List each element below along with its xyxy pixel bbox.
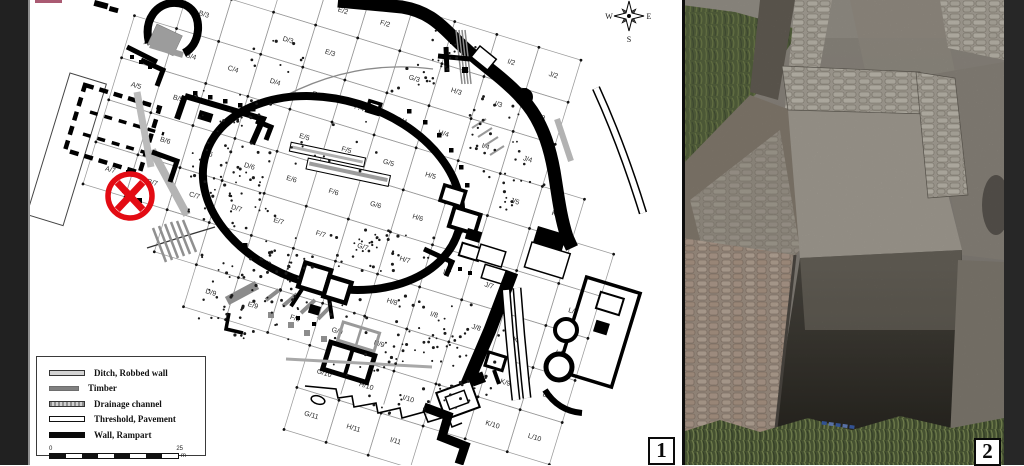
central-pavement — [286, 142, 393, 186]
legend-swatch-ditch — [49, 370, 85, 376]
photo-grain — [682, 0, 1004, 465]
drainage-c8 — [153, 220, 196, 262]
wall-bracket-e9 — [226, 313, 243, 333]
grid-square-label: E/5 — [298, 133, 310, 143]
legend-swatch-drainage — [49, 401, 85, 407]
grid-square-label: E/9 — [247, 301, 259, 311]
grid-square-label: F/6 — [328, 188, 340, 198]
scale-end-label: 25 — [176, 446, 183, 452]
grid-square-label: D/9 — [204, 288, 217, 298]
grid-square-label: J/2 — [548, 71, 559, 80]
survey-trench-outline — [30, 73, 106, 226]
grid-square-label: G/6 — [369, 200, 382, 210]
church-complex — [545, 277, 640, 413]
grid-square-label: H/11 — [345, 423, 361, 434]
excavation-photo — [682, 0, 1004, 465]
grid-square-label: H/7 — [398, 255, 411, 265]
legend-label: Ditch, Robbed wall — [94, 368, 168, 378]
grid-square-label: E/7 — [272, 217, 284, 227]
legend-label: Wall, Rampart — [94, 430, 152, 440]
grid-square-label: H/6 — [411, 213, 424, 223]
grid-square-label: H/3 — [450, 87, 463, 97]
scale-start-label: 0 — [49, 446, 52, 452]
legend-item: Threshold, Pavement — [49, 412, 195, 428]
legend-label: Timber — [88, 383, 117, 393]
scale-labels: 0 25 — [49, 446, 183, 452]
photo-left-border — [682, 0, 685, 465]
scale-bar: 0 25 m — [49, 446, 191, 459]
legend-swatch-wall — [49, 432, 85, 438]
grid-square-label: F/2 — [379, 19, 391, 29]
scale-unit-label: m — [181, 453, 186, 459]
grid-square-label: G/5 — [382, 158, 395, 168]
legend-item: Timber — [49, 381, 195, 397]
grid-square-label: I/2 — [506, 58, 516, 67]
legend-swatch-timber — [49, 386, 79, 391]
grid-square-label: L/10 — [527, 433, 542, 444]
grid-square-label: D/4 — [269, 78, 282, 88]
grid-square-label: B/6 — [159, 136, 171, 146]
legend-item: Ditch, Robbed wall — [49, 365, 195, 381]
grid-square-label: D/6 — [243, 162, 256, 172]
grid-square-label: I/10 — [402, 394, 415, 404]
compass-west-label: W — [605, 12, 613, 21]
figure-1-label: 1 — [648, 437, 675, 465]
compass-south-label: S — [627, 35, 631, 44]
grid-square-label: I/11 — [389, 437, 402, 447]
grid-square-label: E/3 — [324, 49, 336, 59]
grid-square-label: J/8 — [471, 323, 482, 332]
legend-label: Drainage channel — [94, 399, 162, 409]
compass-rose: W E S N — [605, 0, 651, 44]
grid-square-label: G/11 — [303, 410, 319, 421]
viewer-left-strip — [0, 0, 28, 465]
legend-item: Drainage channel — [49, 396, 195, 412]
grid-square-label: K/10 — [484, 420, 500, 431]
map-legend: Ditch, Robbed wallTimberDrainage channel… — [36, 356, 206, 456]
grid-square-label: J/7 — [483, 281, 494, 290]
scale-bar-segments — [49, 453, 179, 459]
grid-square-label: H/5 — [424, 171, 437, 181]
grid-square-label: G/3 — [408, 74, 421, 84]
legend-swatch-threshold — [49, 416, 85, 422]
horseshoe-building — [93, 0, 198, 86]
ditch-band — [557, 119, 571, 161]
grid-square-label: A/5 — [130, 81, 142, 91]
viewer-right-strip — [1004, 0, 1024, 465]
legend-label: Threshold, Pavement — [94, 414, 176, 424]
legend-item: Wall, Rampart — [49, 427, 195, 443]
grid-square-label: I/8 — [429, 311, 439, 320]
building-k6 — [524, 242, 570, 279]
figure-2-label: 2 — [974, 438, 1001, 466]
outer-ditch-sliver — [596, 88, 643, 213]
legend-items: Ditch, Robbed wallTimberDrainage channel… — [49, 365, 195, 443]
grid-square-label: C/7 — [188, 191, 201, 201]
grid-square-label: E/6 — [285, 175, 297, 185]
grid-square-label: C/4 — [227, 65, 240, 75]
grid-square-label: F/7 — [315, 230, 327, 240]
compass-east-label: E — [647, 12, 652, 21]
grid-square-label: H/8 — [386, 298, 399, 308]
grid-square-label: D/7 — [230, 204, 243, 214]
